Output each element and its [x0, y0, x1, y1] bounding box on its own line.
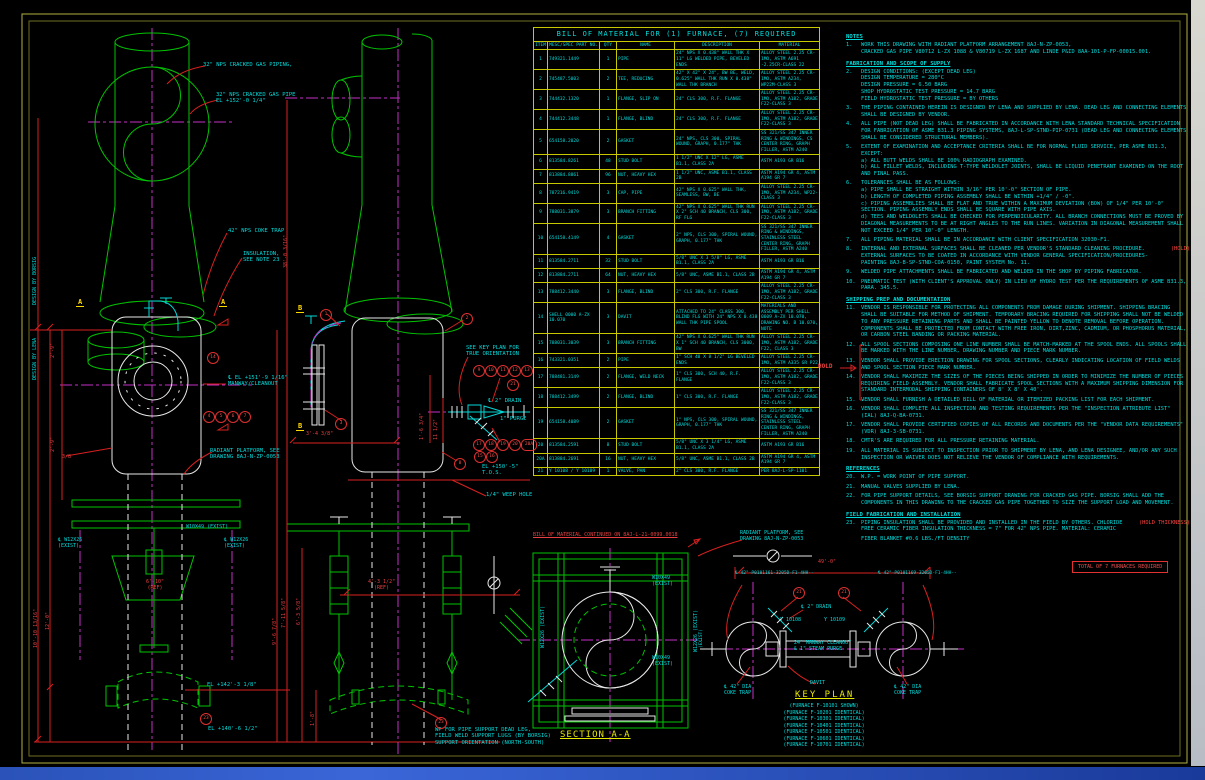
- label-see-key-plan: SEE KEY PLAN FOR TRUE ORIENTATION: [466, 345, 519, 358]
- dim-9-6-7-8: 9'-6 7/8": [273, 618, 279, 645]
- balloon-item-7: 7: [239, 411, 251, 423]
- note-line: 19.ALL MATERIAL IS SUBJECT TO INSPECTION…: [846, 448, 1190, 462]
- note-line: 9.WELDED PIPE ATTACHMENTS SHALL BE FABRI…: [846, 269, 1190, 276]
- bom-cell-part: 788412.3440: [548, 283, 600, 303]
- label-el-150-tos: EL +150'-5" T.O.S.: [482, 464, 518, 477]
- bom-cell-desc: 2" CLS 300, R.F. FLANGE: [675, 283, 760, 303]
- bom-cell-material: SS 321/SS 347 INNER RING & WINDINGS, STA…: [760, 408, 820, 439]
- bom-cell-name: CAP, PIPE: [617, 183, 675, 203]
- bom-cell-material: MATERIALS AND ASSEMBLY PER SHELL 0609 A-…: [760, 303, 820, 334]
- furnace-list-item: (FURNACE F-10701 IDENTICAL): [772, 742, 876, 749]
- balloon-item-16: 16: [486, 451, 498, 463]
- bom-cell-qty: 48: [600, 155, 617, 169]
- dim-2-9-upper: 2'-9": [51, 343, 57, 358]
- bom-cell-qty: 2: [600, 354, 617, 368]
- bom-cell-desc: 5/8" UNC X 3 5/8" LG, ASME B1.1, CLASS 2…: [675, 254, 760, 268]
- dim-4-3-1-2-ref: 4'-3 1/2" (REF): [368, 580, 395, 592]
- label-coke-trap: 42" NPS COKE TRAP: [228, 228, 284, 234]
- balloon-item-20: 20: [509, 439, 521, 451]
- bom-cell-name: PIPE: [617, 50, 675, 70]
- bom-cell-material: ALLOY STEEL 2.25 CR-1MO, ASTM A234, WP22…: [760, 70, 820, 90]
- note-line: 22.FOR PIPE SUPPORT DETAILS, SEE BORSIG …: [846, 493, 1190, 507]
- bom-cell-name: GASKET: [617, 408, 675, 439]
- bom-cell-name: FLANGE, BLIND: [617, 388, 675, 408]
- bom-cell-part: 654158.4149: [548, 223, 600, 254]
- key-plan-title: KEY PLAN: [795, 690, 854, 701]
- left-elevation-linework: [60, 28, 252, 752]
- bom-row: 15 788031.3039 3 BRANCH FITTING 42" NPS …: [534, 334, 820, 354]
- bom-cell-qty: 3: [600, 283, 617, 303]
- bom-row: 13 788412.3440 3 FLANGE, BLIND 2" CLS 30…: [534, 283, 820, 303]
- bom-cell-item: 12: [534, 269, 548, 283]
- bom-row: 20A 813884.2691 16 NUT, HEAVY HEX 5/8" U…: [534, 453, 820, 467]
- note-line: 6.TOLERANCES SHALL BE AS FOLLOWS: a) PIP…: [846, 180, 1190, 234]
- bom-cell-desc: 42" NPS X 0.625" WALL THK RUN X 1" SCH 4…: [675, 334, 760, 354]
- note-line: 13.VENDOR SHALL PROVIDE ERECTION DRAWING…: [846, 358, 1190, 372]
- bom-cell-name: TEE, REDUCING: [617, 70, 675, 90]
- bom-cell-desc: 24" CLS 300, R.F. FLANGE: [675, 110, 760, 130]
- bom-cell-name: NUT, HEAVY HEX: [617, 453, 675, 467]
- balloon-item-12: 12: [509, 365, 521, 377]
- bom-cell-item: 5: [534, 129, 548, 155]
- dim-6-10-ref: 6'-10" (REF): [146, 580, 164, 592]
- note-line: 16.VENDOR SHALL COMPLETE ALL INSPECTION …: [846, 406, 1190, 420]
- dim-1-8: 1'-8": [311, 711, 317, 726]
- notes-heading: NOTES: [846, 34, 1190, 40]
- bom-cell-item: 19: [534, 408, 548, 439]
- note-line: 1.WORK THIS DRAWING WITH RADIANT PLATFOR…: [846, 42, 1190, 56]
- dim-12-0: 12'-0": [46, 612, 52, 630]
- balloon-item-23-mid: 23: [435, 717, 447, 729]
- note-line: 11.VENDOR IS RESPONSIBLE FOR PROTECTING …: [846, 305, 1190, 339]
- bom-cell-part: 813884.2691: [548, 453, 600, 467]
- label-kp-drain: ℄ 2" DRAIN: [801, 605, 831, 611]
- bom-row: 16 743321.0351 2 PIPE 1" SCH 40 X 8 1/2"…: [534, 354, 820, 368]
- bom-cell-name: GASKET: [617, 223, 675, 254]
- bom-cell-part: 813584.2711: [548, 254, 600, 268]
- bom-cell-qty: 32: [600, 254, 617, 268]
- balloon-item-21-keyplan-left: 21: [793, 587, 805, 599]
- middle-view-dimensions: [287, 100, 530, 742]
- bom-cell-item: 15: [534, 334, 548, 354]
- bom-cell-item: 13: [534, 283, 548, 303]
- bom-row: 9 788031.3879 3 BRANCH FITTING 42" NPS X…: [534, 203, 820, 223]
- balloon-item-1: 1: [320, 309, 332, 321]
- bom-row: 12 813884.2711 64 NUT, HEAVY HEX 5/8" UN…: [534, 269, 820, 283]
- section-aa-linework: [488, 539, 702, 742]
- bom-col-qty: QTY: [600, 41, 617, 50]
- furnace-list-item: (FURNACE F-10301 IDENTICAL): [772, 716, 876, 723]
- dim-49-0: 49'-0": [818, 560, 836, 566]
- section-flag-a-left: A: [76, 298, 84, 307]
- bom-cell-item: 18: [534, 388, 548, 408]
- label-valve-y10109: Y 10109: [824, 618, 845, 624]
- section-aa-title: SECTION A-A: [560, 730, 631, 741]
- bom-cell-part: 813584.8261: [548, 155, 600, 169]
- label-el-142: EL +142'-3 1/8": [207, 682, 257, 688]
- section-flag-b-upper: B: [296, 304, 304, 313]
- bom-row: 11 813584.2711 32 STUD BOLT 5/8" UNC X 3…: [534, 254, 820, 268]
- label-wp-pipe-support: WP FOR PIPE SUPPORT DEAD LEG, FIELD WELD…: [435, 727, 551, 746]
- balloon-item-15: 15: [474, 451, 486, 463]
- note-line: 20.W.P. = WORK POINT OF PIPE SUPPORT.: [846, 474, 1190, 481]
- balloon-item-20a: 20A: [521, 439, 537, 451]
- dim-38-0-3-16: 38'-0 3/16": [284, 235, 290, 268]
- note-line: 3.THE PIPING CONTAINED HEREIN IS DESIGNE…: [846, 105, 1190, 119]
- bom-cell-material: ASTM A193 GR B16: [760, 439, 820, 453]
- bom-cell-desc: 5/8" UNC, ASME B1.1, CLASS 2B: [675, 269, 760, 283]
- bom-cell-desc: 1 1/2" UNC, ASME B1.1, CLASS 2B: [675, 169, 760, 183]
- dim-10-10-13-16: 10'-10 13/16": [34, 609, 40, 648]
- bom-cell-name: STUD BOLT: [617, 155, 675, 169]
- balloon-item-13: 13: [521, 365, 533, 377]
- bom-row: 20 813584.2591 8 STUD BOLT 5/8" UNC X 3 …: [534, 439, 820, 453]
- bom-cell-qty: 1: [600, 110, 617, 130]
- bom-cell-material: ALLOY STEEL 2.25 CR-1MO, ASTM A182, GRAD…: [760, 368, 820, 388]
- bom-cell-desc: ATTACHED TO 24" CLASS 300, BLIND FLG WIT…: [675, 303, 760, 334]
- bom-cell-part: 744412.3448: [548, 110, 600, 130]
- bom-cell-qty: 16: [600, 453, 617, 467]
- bom-cell-material: ALLOY STEEL 2.25 CR-1MO, ASTM A335 GR P2…: [760, 354, 820, 368]
- middle-elevation-linework: [285, 28, 540, 755]
- bom-cell-desc: 1" CLS 300, SCH 40, R.F. FLANGE: [675, 368, 760, 388]
- bom-row: 18 788412.3499 2 FLANGE, BLIND 1" CLS 30…: [534, 388, 820, 408]
- note-line: 4.ALL PIPE (NOT DEAD LEG) SHALL BE FABRI…: [846, 121, 1190, 141]
- bom-cell-part: 654158.4089: [548, 408, 600, 439]
- bom-cell-part: 654158.2020: [548, 129, 600, 155]
- balloon-item-6: 6: [227, 411, 239, 423]
- notes-section-shipping-heading: SHIPPING PREP AND DOCUMENTATION: [846, 297, 1190, 303]
- bom-cell-qty: 96: [600, 169, 617, 183]
- note-line: 15.VENDOR SHALL FURNISH A DETAILED BILL …: [846, 397, 1190, 404]
- bom-cell-item: 20A: [534, 453, 548, 467]
- bom-row: 3 744432.1320 1 FLANGE, SLIP ON 24" CLS …: [534, 90, 820, 110]
- balloon-item-11: 11: [497, 365, 509, 377]
- label-valve-y10108: Y 10108: [780, 618, 801, 624]
- bom-cell-desc: 5/8" UNC X 3 1/4" LG, ASME B1.1, CLASS 2…: [675, 439, 760, 453]
- label-design-by-lena: DESIGN BY LENA: [33, 338, 39, 380]
- label-sa-w10x49-upper: W10X49 (EXIST): [652, 576, 673, 588]
- bom-cell-desc: 2" CLS 300, R.F. FLANGE: [675, 467, 760, 476]
- bom-cell-material: ASTM A194 GR 4, ASTM A194 GR 7: [760, 453, 820, 467]
- balloon-item-8: 8: [454, 458, 466, 470]
- bom-row: 5 654158.2020 2 GASKET 24" NPS, CLS 300,…: [534, 129, 820, 155]
- notes-column: NOTES 1.WORK THIS DRAWING WITH RADIANT P…: [846, 29, 1190, 545]
- label-w10x49-left: W10X49 (EXIST): [186, 525, 228, 531]
- bom-cell-desc: 1" CLS 300, R.F. FLANGE: [675, 388, 760, 408]
- balloon-item-21-keyplan-right: 21: [838, 587, 850, 599]
- notes-section-fabrication-heading: FABRICATION AND SCOPE OF SUPPLY: [846, 61, 1190, 67]
- bom-cell-part: 813884.8861: [548, 169, 600, 183]
- bom-cell-item: 9: [534, 203, 548, 223]
- bom-cell-material: ALLOY STEEL 2.25 CR-1MO, ASTM A182, GRAD…: [760, 334, 820, 354]
- note-line: 5.EXTENT OF EXAMINATION AND ACCEPTANCE C…: [846, 144, 1190, 178]
- bom-row: 21 Y 10108 / Y 10109 1 VALVE, PAN 2" CLS…: [534, 467, 820, 476]
- bom-cell-part: 813584.2591: [548, 439, 600, 453]
- note-line: 12.ALL SPOOL SECTIONS COMPOSING ONE LINE…: [846, 342, 1190, 356]
- bom-cell-material: PER 8AJ-L-SP-1101: [760, 467, 820, 476]
- bom-cell-desc: 1 1/2" UNC X 12" LG, ASME B1.1, CLASS 2A: [675, 155, 760, 169]
- bom-cell-qty: 2: [600, 408, 617, 439]
- bom-cell-desc: 1" NPS, CLS 300, SPIRAL WOUND, GRAPH, 0.…: [675, 408, 760, 439]
- bom-cell-material: ALLOY STEEL 2.25 CR-1MO, ASTM A182, GRAD…: [760, 283, 820, 303]
- bom-cell-item: 2: [534, 70, 548, 90]
- balloon-item-9: 9: [473, 365, 485, 377]
- bom-row: 4 744412.3448 1 FLANGE, BLIND 24" CLS 30…: [534, 110, 820, 130]
- furnace-list-item: (FURNACE F-10501 IDENTICAL): [772, 729, 876, 736]
- bom-cell-part: 788031.3039: [548, 334, 600, 354]
- bom-cell-qty: 4: [600, 223, 617, 254]
- balloon-item-23-left: 23: [200, 713, 212, 725]
- bom-cell-name: FLANGE, BLIND: [617, 110, 675, 130]
- balloon-item-21-mid: 21: [507, 379, 519, 391]
- bom-cell-material: ASTM A193 GR B16: [760, 254, 820, 268]
- total-furnaces-box: TOTAL OF 7 FURNACES REQUIRED: [1072, 561, 1168, 573]
- bom-cell-desc: 42" NPS X 0.625" WALL THK, SEAMLESS, BW,…: [675, 183, 760, 203]
- bom-cell-part: 788481.3149: [548, 368, 600, 388]
- notes-section-field-heading: FIELD FABRICATION AND INSTALLATION: [846, 512, 1190, 518]
- bom-cell-name: PIPE: [617, 354, 675, 368]
- bom-cell-material: ALLOY STEEL 2.25 CR-1MO, ASTM A182, GRAD…: [760, 388, 820, 408]
- bom-cell-item: 10: [534, 223, 548, 254]
- bom-cell-item: 21: [534, 467, 548, 476]
- bom-cell-desc: 24" NPS X 0.438" WALL THK X 11" LG WELDE…: [675, 50, 760, 70]
- bom-cell-desc: 1" SCH 40 X 8 1/2" LG BEVELED ENDS: [675, 354, 760, 368]
- bom-cell-name: FLANGE, SLIP ON: [617, 90, 675, 110]
- balloon-item-14: 14: [207, 352, 219, 364]
- bom-cell-qty: 2: [600, 70, 617, 90]
- bom-cell-item: 3: [534, 90, 548, 110]
- bom-cell-item: 6: [534, 155, 548, 169]
- bom-col-part: MESC/SPEC PART NO.: [548, 41, 600, 50]
- bom-cell-part: 749321.1449: [548, 50, 600, 70]
- note-line: 10.PNEUMATIC TEST (WITH CLIENT'S APPROVA…: [846, 279, 1190, 293]
- balloon-item-5: 5: [215, 411, 227, 423]
- bom-row: 1 749321.1449 1 PIPE 24" NPS X 0.438" WA…: [534, 50, 820, 70]
- balloon-item-17: 17: [473, 439, 485, 451]
- bom-cell-material: ALLOY STEEL 2.25 CR-1MO, ASTM A182, GRAD…: [760, 110, 820, 130]
- bom-cell-name: DAVIT: [617, 303, 675, 334]
- bom-cell-material: ASTM A194 GR 4, ASTM A194 GR 7: [760, 169, 820, 183]
- bom-cell-part: 788412.3499: [548, 388, 600, 408]
- label-line-number-left: ℄ 42"-P0101161-3205D-F1-4HH--: [735, 571, 814, 576]
- label-radiant-platform-keyplan: RADIANT PLATFORM, SEE DRAWING 8AJ-N-ZP-0…: [740, 531, 803, 543]
- balloon-item-19: 19: [497, 439, 509, 451]
- bill-of-material-table: BILL OF MATERIAL FOR (1) FURNACE, (7) RE…: [533, 27, 820, 476]
- label-coke-trap-right: ℄ 42" DIA COKE TRAP: [894, 685, 921, 697]
- note-line: 23.PIPING INSULATION SHALL BE PROVIDED A…: [846, 520, 1190, 534]
- bom-cell-qty: 3: [600, 334, 617, 354]
- bom-row: 2 745487.5003 2 TEE, REDUCING 42" X 42" …: [534, 70, 820, 90]
- bom-cell-desc: 24" CLS 300, R.F. FLANGE: [675, 90, 760, 110]
- bom-cell-qty: 2: [600, 368, 617, 388]
- bom-cell-material: ALLOY STEEL 2.25 CR-1MO, ASTM A691 -2.25…: [760, 50, 820, 70]
- label-line-number-right: ℄ 42"-P0101169-3205D-F1-4HH--: [878, 571, 957, 576]
- bom-cell-part: 787216.9419: [548, 183, 600, 203]
- bom-row: 8 787216.9419 3 CAP, PIPE 42" NPS X 0.62…: [534, 183, 820, 203]
- bom-col-material: MATERIAL: [760, 41, 820, 50]
- note-line: 21.MANUAL VALVES SUPPLIED BY LENA.: [846, 484, 1190, 491]
- balloon-item-3: 3: [335, 418, 347, 430]
- bom-cell-item: 4: [534, 110, 548, 130]
- balloon-item-4: 4: [203, 411, 215, 423]
- label-cracked-gas-pipe-el: 32" NPS CRACKED GAS PIPE EL +152'-0 1/4": [216, 92, 295, 105]
- label-davit: DAVIT: [810, 681, 825, 687]
- section-flag-a-right: A: [219, 298, 227, 307]
- bom-cell-part: SHELL 0000 A-ZX 10.070: [548, 303, 600, 334]
- dim-weld-3-8: 3/8: [62, 455, 71, 461]
- cad-drawing-canvas: BILL OF MATERIAL FOR (1) FURNACE, (7) RE…: [0, 0, 1205, 780]
- bom-row: 6 813584.8261 48 STUD BOLT 1 1/2" UNC X …: [534, 155, 820, 169]
- bom-cell-name: STUD BOLT: [617, 439, 675, 453]
- section-flag-b-lower: B: [296, 422, 304, 431]
- notes-section-references-heading: REFERENCES: [846, 466, 1190, 472]
- note-line: 8.INTERNAL AND EXTERNAL SURFACES SHALL B…: [846, 246, 1190, 266]
- dim-2-9-lower: 2'-9": [51, 437, 57, 452]
- bom-cell-name: GASKET: [617, 129, 675, 155]
- bom-header-row: ITEM MESC/SPEC PART NO. QTY NAME DESCRIP…: [534, 41, 820, 50]
- label-coke-trap-left: ℄ 42" DIA COKE TRAP: [724, 685, 751, 697]
- label-manway-cleanout: 24" MANWAY CLEANOUT & 1" STEAM PURGE: [794, 641, 851, 653]
- bom-cell-part: 744432.1320: [548, 90, 600, 110]
- bom-row: 14 SHELL 0000 A-ZX 10.070 3 DAVIT ATTACH…: [534, 303, 820, 334]
- bom-cell-item: 1: [534, 50, 548, 70]
- key-plan-furnace-list: (FURNACE F-10101 SHOWN)(FURNACE F-10201 …: [772, 703, 876, 749]
- dim-3-4-3-8: 3'-4 3/8": [306, 432, 333, 438]
- bom-cell-name: STUD BOLT: [617, 254, 675, 268]
- bom-cell-material: ASTM A193 GR B16: [760, 155, 820, 169]
- bom-cell-part: Y 10108 / Y 10109: [548, 467, 600, 476]
- bom-cell-name: NUT, HEAVY HEX: [617, 169, 675, 183]
- bom-cell-part: 745487.5003: [548, 70, 600, 90]
- bom-row: 7 813884.8861 96 NUT, HEAVY HEX 1 1/2" U…: [534, 169, 820, 183]
- dim-11-1-2: 11 1/2": [434, 419, 440, 440]
- bom-cell-desc: 42" X 42" X 24", BW BE, WELD, 0.625" WAL…: [675, 70, 760, 90]
- balloon-item-2: 2: [461, 313, 473, 325]
- bom-cell-material: ALLOY STEEL 2.25 CR-1MO, ASTM A182, GRAD…: [760, 90, 820, 110]
- label-sa-w10x49-lower: W10X49 (EXIST): [652, 656, 673, 668]
- bom-cell-qty: 64: [600, 269, 617, 283]
- bom-row: 10 654158.4149 4 GASKET 2" NPS, CLS 300,…: [534, 223, 820, 254]
- label-radiant-platform-left: RADIANT PLATFORM, SEE DRAWING 8AJ-N-ZP-0…: [210, 448, 280, 461]
- hold-flag-label: HOLD: [818, 363, 832, 370]
- note-line: 2.DESIGN CONDITIONS: (EXCEPT DEAD LEG) D…: [846, 69, 1190, 103]
- bom-cell-item: 8: [534, 183, 548, 203]
- bom-continued-note: BILL OF MATERIAL CONTINUED ON 8AJ-L-21-0…: [533, 533, 678, 539]
- bom-col-item: ITEM: [534, 41, 548, 50]
- bom-cell-qty: 3: [600, 203, 617, 223]
- note-line: 18.CMTR'S ARE REQUIRED FOR ALL PRESSURE …: [846, 438, 1190, 445]
- label-manway-cleanout-el: ℄ EL +151'-9 1/16" MANWAY/CLEANOUT: [228, 375, 288, 388]
- dim-7-11-5-8: 7'-11 5/8": [282, 598, 288, 628]
- note-line: 14.VENDOR SHALL MAXIMIZE THE SIZES OF TH…: [846, 374, 1190, 394]
- bom-row: 19 654158.4089 2 GASKET 1" NPS, CLS 300,…: [534, 408, 820, 439]
- dim-1-6-3-4: 1'-6 3/4": [420, 413, 426, 440]
- bom-cell-qty: 2: [600, 129, 617, 155]
- dim-6-3-5-8: 6'-3 5/8": [297, 598, 303, 625]
- label-design-by-borsig: DESIGN BY BORSIG: [33, 257, 39, 305]
- bom-cell-name: BRANCH FITTING: [617, 203, 675, 223]
- bom-cell-part: 813884.2711: [548, 269, 600, 283]
- label-w12x26-left: ℄ W12X26 (EXIST): [58, 538, 82, 550]
- bom-cell-material: SS 321/SS 347 INNER RING & WINDINGS, CS …: [760, 129, 820, 155]
- bom-cell-qty: 1: [600, 467, 617, 476]
- label-sa-w12x26-left: W12X26 (EXIST): [541, 606, 547, 648]
- bom-cell-qty: 3: [600, 183, 617, 203]
- note-line: 7.ALL PIPING MATERIAL SHALL BE IN ACCORD…: [846, 237, 1190, 244]
- bom-cell-item: 7: [534, 169, 548, 183]
- bom-cell-material: ASTM A194 GR 4, ASTM A194 GR 7: [760, 269, 820, 283]
- balloon-item-18: 18: [485, 439, 497, 451]
- bom-col-desc: DESCRIPTION: [675, 41, 760, 50]
- bom-cell-material: SS 321/SS 347 INNER RING & WINDINGS, STA…: [760, 223, 820, 254]
- bom-cell-qty: 3: [600, 303, 617, 334]
- bom-cell-qty: 1: [600, 50, 617, 70]
- bom-cell-name: FLANGE, WELD NECK: [617, 368, 675, 388]
- bom-cell-item: 14: [534, 303, 548, 334]
- bom-title: BILL OF MATERIAL FOR (1) FURNACE, (7) RE…: [534, 28, 820, 42]
- bom-cell-part: 743321.0351: [548, 354, 600, 368]
- bom-cell-name: FLANGE, BLIND: [617, 283, 675, 303]
- bom-cell-name: BRANCH FITTING: [617, 334, 675, 354]
- balloon-item-10: 10: [485, 365, 497, 377]
- bom-cell-desc: 5/8" UNC, ASME B1.1, CLASS 2B: [675, 453, 760, 467]
- label-w12x26-right: ℄ W12X26 (EXIST): [224, 538, 248, 550]
- bom-cell-name: NUT, HEAVY HEX: [617, 269, 675, 283]
- bom-cell-material: ALLOY STEEL 2.25 CR-1MO, ASTM A234, WP22…: [760, 183, 820, 203]
- bom-cell-item: 17: [534, 368, 548, 388]
- label-insulation: INSULATION, SEE NOTE 23: [243, 251, 279, 264]
- window-bottom-edge: [0, 767, 1205, 780]
- label-1in-purge: 1" PURGE: [500, 416, 527, 422]
- bom-cell-item: 11: [534, 254, 548, 268]
- bom-cell-qty: 1: [600, 90, 617, 110]
- bom-cell-part: 788031.3879: [548, 203, 600, 223]
- note-line: FIBER BLANKET #0.6 LBS./FT DENSITY: [846, 536, 1190, 543]
- bom-cell-item: 16: [534, 354, 548, 368]
- label-el-140: EL +140'-6 1/2": [208, 726, 258, 732]
- bom-cell-desc: 2" NPS, CLS 300, SPIRAL WOUND, GRAPH, 0.…: [675, 223, 760, 254]
- label-weep-hole: 1/4" WEEP HOLE: [486, 492, 532, 498]
- note-line: 17.VENDOR SHALL PROVIDE CERTIFIED COPIES…: [846, 422, 1190, 436]
- window-scrollbar-strip[interactable]: [1191, 0, 1205, 766]
- bom-cell-desc: 42" NPS X 0.625" WALL THK RUN X 2" SCH 4…: [675, 203, 760, 223]
- label-cracked-gas-piping: 32" NPS CRACKED GAS PIPING,: [203, 62, 292, 68]
- label-2in-drain: ℄ 2" DRAIN: [488, 398, 521, 404]
- bom-cell-desc: 24" NPS, CLS 300, SPIRAL WOUND, GRAPH, 0…: [675, 129, 760, 155]
- bom-cell-qty: 8: [600, 439, 617, 453]
- label-kp-exist: (EXIST): [699, 629, 704, 648]
- bom-cell-qty: 2: [600, 388, 617, 408]
- bom-col-name: NAME: [617, 41, 675, 50]
- bom-cell-material: ALLOY STEEL 2.25 CR-1MO, ASTM A182, GRAD…: [760, 203, 820, 223]
- bom-cell-name: VALVE, PAN: [617, 467, 675, 476]
- bom-row: 17 788481.3149 2 FLANGE, WELD NECK 1" CL…: [534, 368, 820, 388]
